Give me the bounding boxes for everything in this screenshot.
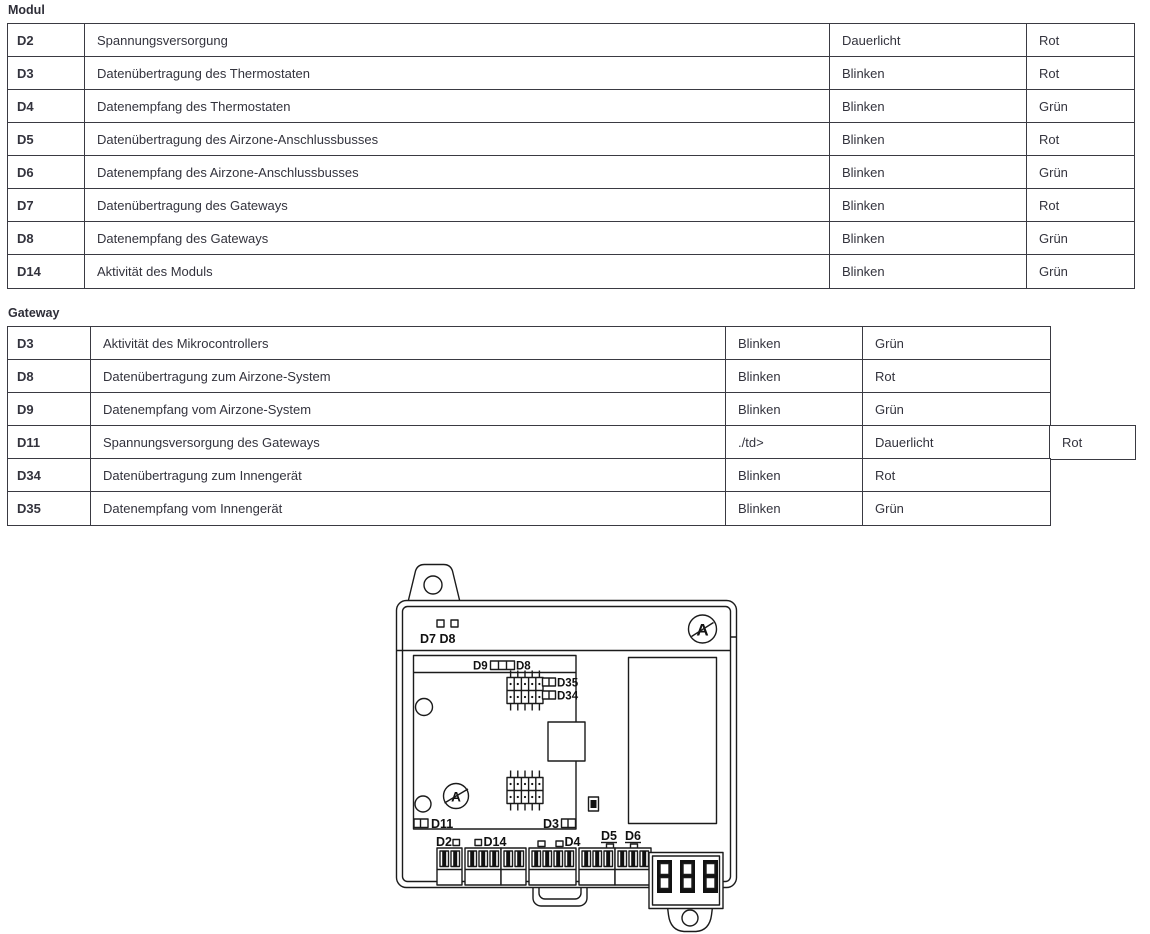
svg-text:D34: D34	[557, 691, 579, 703]
power-connector	[649, 853, 723, 909]
svg-text:A: A	[451, 790, 461, 805]
device-diagram: D7 D8 A D9 D8 D35	[0, 0, 1150, 934]
svg-text:D4: D4	[565, 835, 581, 849]
mounting-tab-top-icon	[408, 565, 460, 603]
board-logo-icon: A	[444, 784, 469, 809]
svg-text:D14: D14	[484, 835, 507, 849]
relay-box	[629, 658, 717, 824]
chip-icon	[589, 797, 599, 811]
component-box	[548, 722, 585, 761]
board-hole-top-icon	[416, 699, 433, 716]
terminal-strip	[437, 848, 651, 885]
svg-text:D11: D11	[431, 817, 453, 831]
airzone-logo-icon: A	[689, 615, 717, 643]
svg-text:D3: D3	[543, 817, 559, 831]
page: Modul D2SpannungsversorgungDauerlichtRot…	[0, 0, 1150, 934]
svg-text:D2: D2	[436, 835, 452, 849]
led-d7-d8-label: D7 D8	[420, 632, 455, 646]
svg-text:D6: D6	[625, 829, 641, 843]
svg-text:D9: D9	[473, 661, 488, 673]
svg-text:D5: D5	[601, 829, 617, 843]
board-hole-bottom-icon	[415, 796, 431, 812]
svg-text:D35: D35	[557, 678, 579, 690]
